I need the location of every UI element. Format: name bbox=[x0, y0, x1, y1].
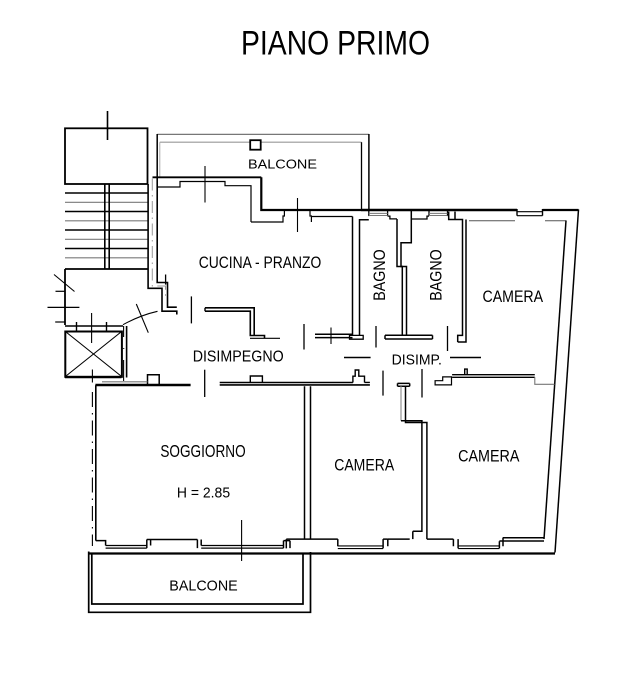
svg-text:BAGNO: BAGNO bbox=[427, 249, 446, 301]
svg-text:PIANO PRIMO: PIANO PRIMO bbox=[241, 25, 430, 63]
svg-text:BAGNO: BAGNO bbox=[370, 249, 389, 301]
svg-text:BALCONE: BALCONE bbox=[248, 157, 317, 172]
svg-text:SOGGIORNO: SOGGIORNO bbox=[160, 441, 245, 461]
svg-text:H = 2.85: H = 2.85 bbox=[177, 486, 230, 502]
svg-text:BALCONE: BALCONE bbox=[169, 579, 238, 595]
svg-text:DISIMP.: DISIMP. bbox=[392, 352, 442, 369]
svg-text:CAMERA: CAMERA bbox=[334, 456, 395, 475]
svg-text:CAMERA: CAMERA bbox=[458, 447, 520, 466]
svg-text:DISIMPEGNO: DISIMPEGNO bbox=[193, 349, 284, 366]
svg-text:CUCINA - PRANZO: CUCINA - PRANZO bbox=[199, 253, 322, 272]
svg-text:CAMERA: CAMERA bbox=[483, 287, 544, 306]
